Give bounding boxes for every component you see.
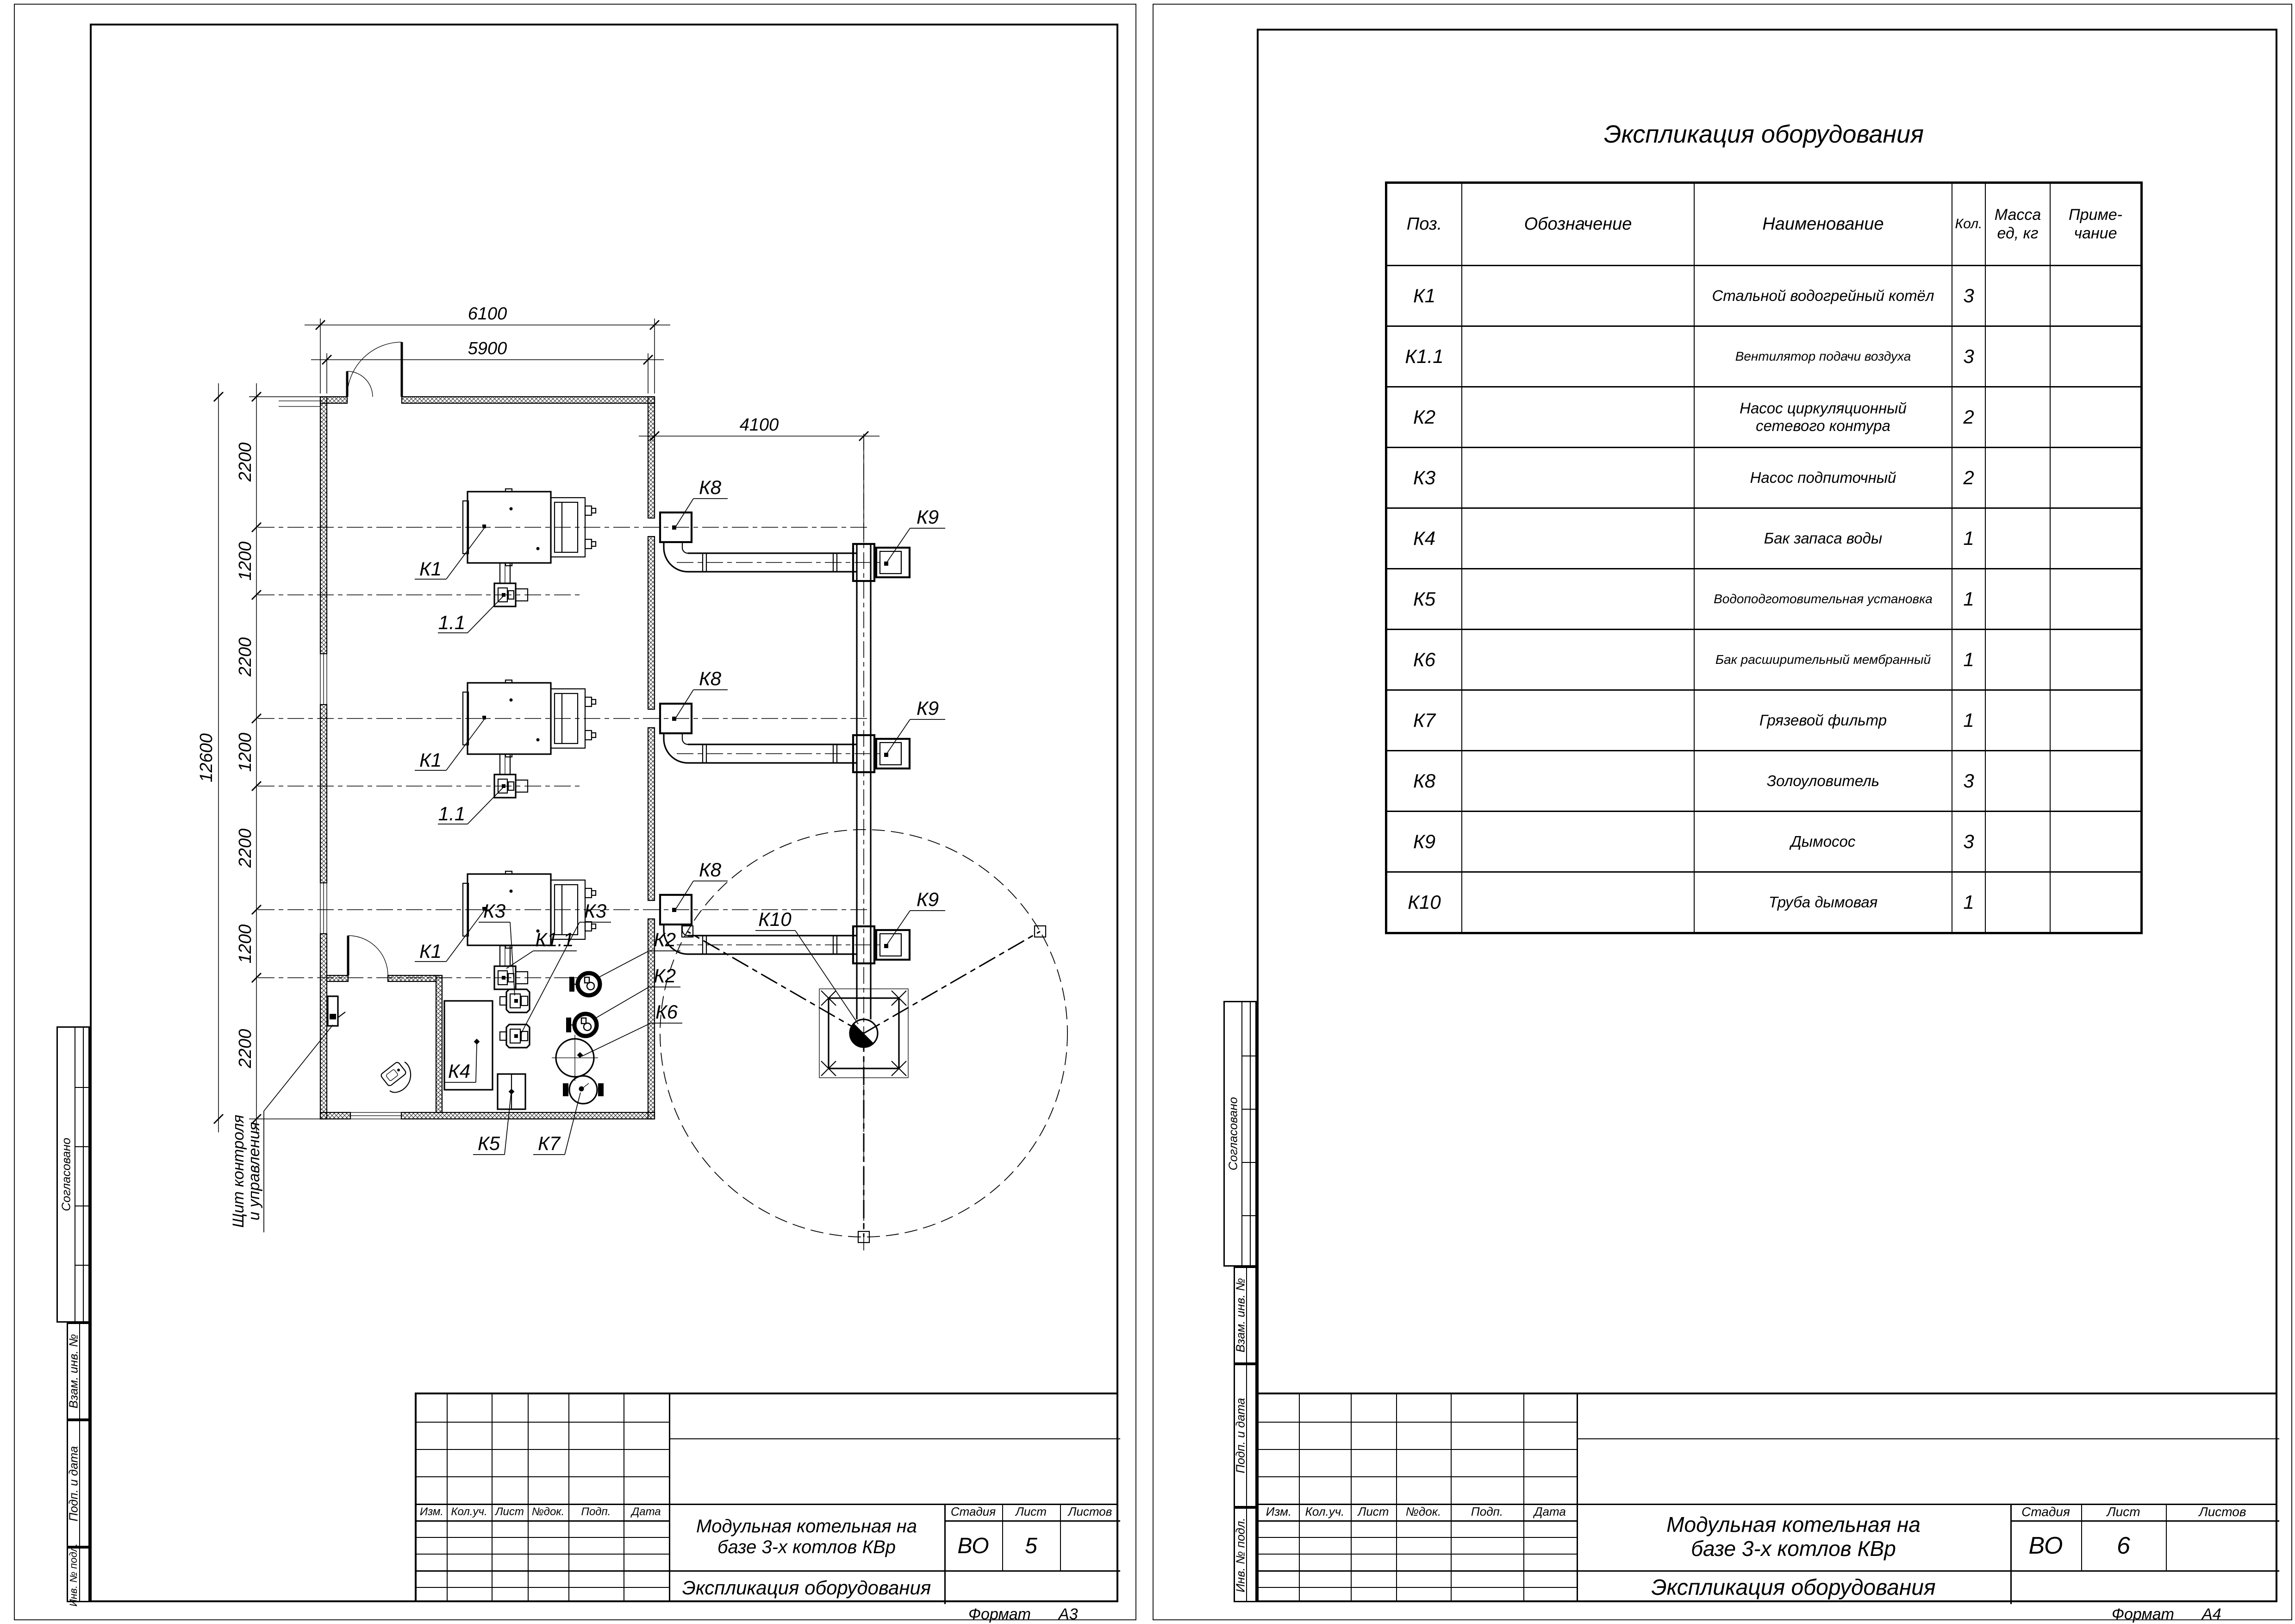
tb-head-podp: Подп. [1451, 1504, 1523, 1520]
label-k9-3: К9 [917, 888, 939, 910]
filter-k7 [563, 1076, 604, 1104]
tb-sheets-label: Листов [1060, 1504, 1120, 1520]
label-k1-1: К1 [419, 558, 442, 580]
tb-project-title: Модульная котельная на базе 3-х котлов К… [669, 1504, 944, 1570]
label-k8-1: К8 [699, 476, 722, 498]
table-row: К3 Насос подпиточный2 [1387, 448, 2140, 507]
label-k3-1: К3 [483, 900, 505, 922]
pump-k3-2 [500, 1024, 530, 1048]
dim-4100: 4100 [740, 415, 779, 435]
label-k8-3: К8 [699, 859, 722, 881]
dim-seg-7: 2200 [236, 1029, 255, 1069]
tb-stage-label: Стадия [2010, 1504, 2081, 1520]
label-fan-3: К1.1 [535, 929, 574, 950]
col-name: Наименование [1695, 184, 1952, 265]
window-openings [320, 654, 401, 1119]
tb-stage-value: ВО [944, 1522, 1002, 1570]
col-designation: Обозначение [1462, 184, 1694, 265]
table-row: К10 Труба дымовая1 [1387, 873, 2140, 932]
stamp-inv-replace: Взам. инв. № [67, 1323, 90, 1420]
tb-head-list: Лист [492, 1504, 528, 1520]
tb-head-koluch: Кол.уч. [447, 1504, 492, 1520]
format-note-right: ФорматА4 [2112, 1605, 2221, 1624]
flue-line-1 [660, 512, 910, 581]
door-main [347, 342, 402, 397]
stamp-inv-orig-label: Инв. № подл. [1234, 1518, 1248, 1592]
dim-seg-6: 1200 [236, 924, 255, 964]
table-row: К4 Бак запаса воды1 [1387, 509, 2140, 568]
boiler-3 [463, 871, 596, 989]
tb-head-list: Лист [1351, 1504, 1396, 1520]
table-row: К5 Водоподготовительная установка1 [1387, 569, 2140, 629]
building-walls [320, 397, 655, 1119]
label-k7: К7 [538, 1132, 561, 1154]
tb-sheet-label: Лист [2081, 1504, 2166, 1520]
dim-6100: 6100 [468, 304, 507, 324]
table-row: К8 Золоуловитель3 [1387, 751, 2140, 811]
label-k10: К10 [758, 908, 792, 930]
tb-sheets-label: Листов [2166, 1504, 2279, 1520]
title-block-left: Изм. Кол.уч. Лист №док. Подп. Дата Модул… [415, 1393, 1118, 1602]
boiler-1 [463, 489, 596, 606]
label-k8-2: К8 [699, 668, 722, 689]
stamp-sign-date: Подп. и дата [67, 1420, 90, 1547]
dim-5900: 5900 [468, 339, 507, 358]
table-row: К7 Грязевой фильтр1 [1387, 691, 2140, 750]
tb-sheets-value [1060, 1522, 1120, 1570]
label-k6: К6 [655, 1001, 678, 1023]
stamp-sign-date-label: Подп. и дата [1234, 1398, 1248, 1474]
axis-centerlines [258, 434, 887, 1251]
stamp-inv-orig: Инв. № подл. [1234, 1507, 1257, 1602]
tb-doc-name: Экспликация оборудования [1577, 1572, 2010, 1604]
tb-doc-name: Экспликация оборудования [669, 1572, 944, 1604]
control-panel [328, 996, 345, 1026]
equipment-table-header: Поз. Обозначение Наименование Кол. Масса… [1387, 184, 2140, 265]
stamp-sign-date: Подп. и дата [1234, 1364, 1257, 1507]
sink [380, 1062, 411, 1093]
dim-seg-2: 1200 [236, 542, 255, 581]
stamp-approved-label: Согласовано [59, 1138, 74, 1212]
tb-head-ndok: №док. [1396, 1504, 1451, 1520]
tb-head-izm: Изм. [417, 1504, 447, 1520]
stamp-inv-replace-label: Взам. инв. № [1234, 1278, 1248, 1353]
water-treatment-k5 [498, 1074, 525, 1109]
label-k5: К5 [478, 1132, 500, 1154]
tb-stage-label: Стадия [944, 1504, 1002, 1520]
label-k1-3: К1 [419, 940, 442, 962]
tb-project-title: Модульная котельная на базе 3-х котлов К… [1577, 1504, 2010, 1570]
col-mass: Массаед, кг [1986, 184, 2050, 265]
sheet-plan-a3: 6100 5900 4100 [14, 4, 1136, 1620]
label-k4: К4 [448, 1060, 470, 1082]
tb-head-koluch: Кол.уч. [1299, 1504, 1351, 1520]
stamp-inv-replace: Взам. инв. № [1234, 1267, 1257, 1364]
dim-seg-4: 1200 [236, 733, 255, 772]
tb-head-data: Дата [624, 1504, 669, 1520]
col-qty: Кол. [1952, 184, 1985, 265]
tb-head-podp: Подп. [568, 1504, 624, 1520]
tb-head-izm: Изм. [1259, 1504, 1299, 1520]
expansion-tank-k6 [552, 1035, 598, 1081]
label-k9-2: К9 [917, 697, 939, 719]
dim-seg-1: 2200 [236, 443, 255, 482]
table-row: К6 Бак расширительный мембранный1 [1387, 630, 2140, 689]
flue-line-2 [660, 704, 910, 772]
dim-12600: 12600 [197, 733, 216, 782]
stamp-approved-label: Согласовано [1226, 1097, 1241, 1171]
label-control-panel-2: и управления [245, 1122, 263, 1220]
table-row: К9 Дымосос3 [1387, 812, 2140, 871]
stamp-approved: Согласовано [56, 1026, 90, 1323]
label-k2-1: К2 [654, 929, 676, 950]
stamp-inv-orig-label: Инв. № подл. [68, 1543, 80, 1606]
label-k1-2: К1 [419, 749, 442, 771]
tb-head-ndok: №док. [528, 1504, 568, 1520]
floor-plan-drawing: 6100 5900 4100 [15, 5, 1137, 1621]
label-control-panel-1: Щит контроля [230, 1115, 247, 1228]
pump-k2-1 [569, 973, 600, 995]
table-row: К1.1 Вентилятор подачи воздуха3 [1387, 327, 2140, 386]
table-row: К1 Стальной водогрейный котёл3 [1387, 266, 2140, 325]
tb-sheet-value: 6 [2081, 1522, 2166, 1570]
label-k9-1: К9 [917, 506, 939, 528]
title-block-right: Изм. Кол.уч. Лист №док. Подп. Дата Модул… [1257, 1393, 2277, 1602]
pump-k2-2 [566, 1014, 597, 1036]
format-note-left: ФорматА3 [968, 1605, 1078, 1624]
tb-sheet-label: Лист [1002, 1504, 1060, 1520]
col-note: Приме-чание [2051, 184, 2140, 265]
stamp-approved: Согласовано [1223, 1001, 1257, 1267]
boiler-2 [463, 680, 596, 798]
table-row: К2 Насос циркуляционныйсетевого контура … [1387, 387, 2140, 447]
dim-seg-5: 2200 [236, 829, 255, 868]
sheet-spec-a4: Экспликация оборудования Поз. Обозначени… [1153, 4, 2292, 1620]
tb-sheet-value: 5 [1002, 1522, 1060, 1570]
col-pos: Поз. [1387, 184, 1461, 265]
tb-stage-value: ВО [2010, 1522, 2081, 1570]
tb-sheets-value [2166, 1522, 2279, 1570]
stamp-sign-date-label: Подп. и дата [67, 1446, 81, 1521]
two-line-name: Насос циркуляционныйсетевого контура [1695, 387, 1952, 447]
stamp-inv-orig: Инв. № подл. [67, 1547, 90, 1602]
tb-head-data: Дата [1523, 1504, 1577, 1520]
dim-seg-3: 2200 [236, 637, 255, 677]
door-room [348, 936, 388, 975]
label-fan-2: 1.1 [438, 803, 465, 824]
table-title: Экспликация оборудования [1385, 116, 2143, 153]
equipment-table: Поз. Обозначение Наименование Кол. Масса… [1385, 181, 2143, 934]
label-k2-2: К2 [654, 965, 676, 987]
label-fan-1: 1.1 [438, 612, 465, 633]
stamp-inv-replace-label: Взам. инв. № [67, 1334, 81, 1409]
label-k3-2: К3 [584, 900, 606, 922]
